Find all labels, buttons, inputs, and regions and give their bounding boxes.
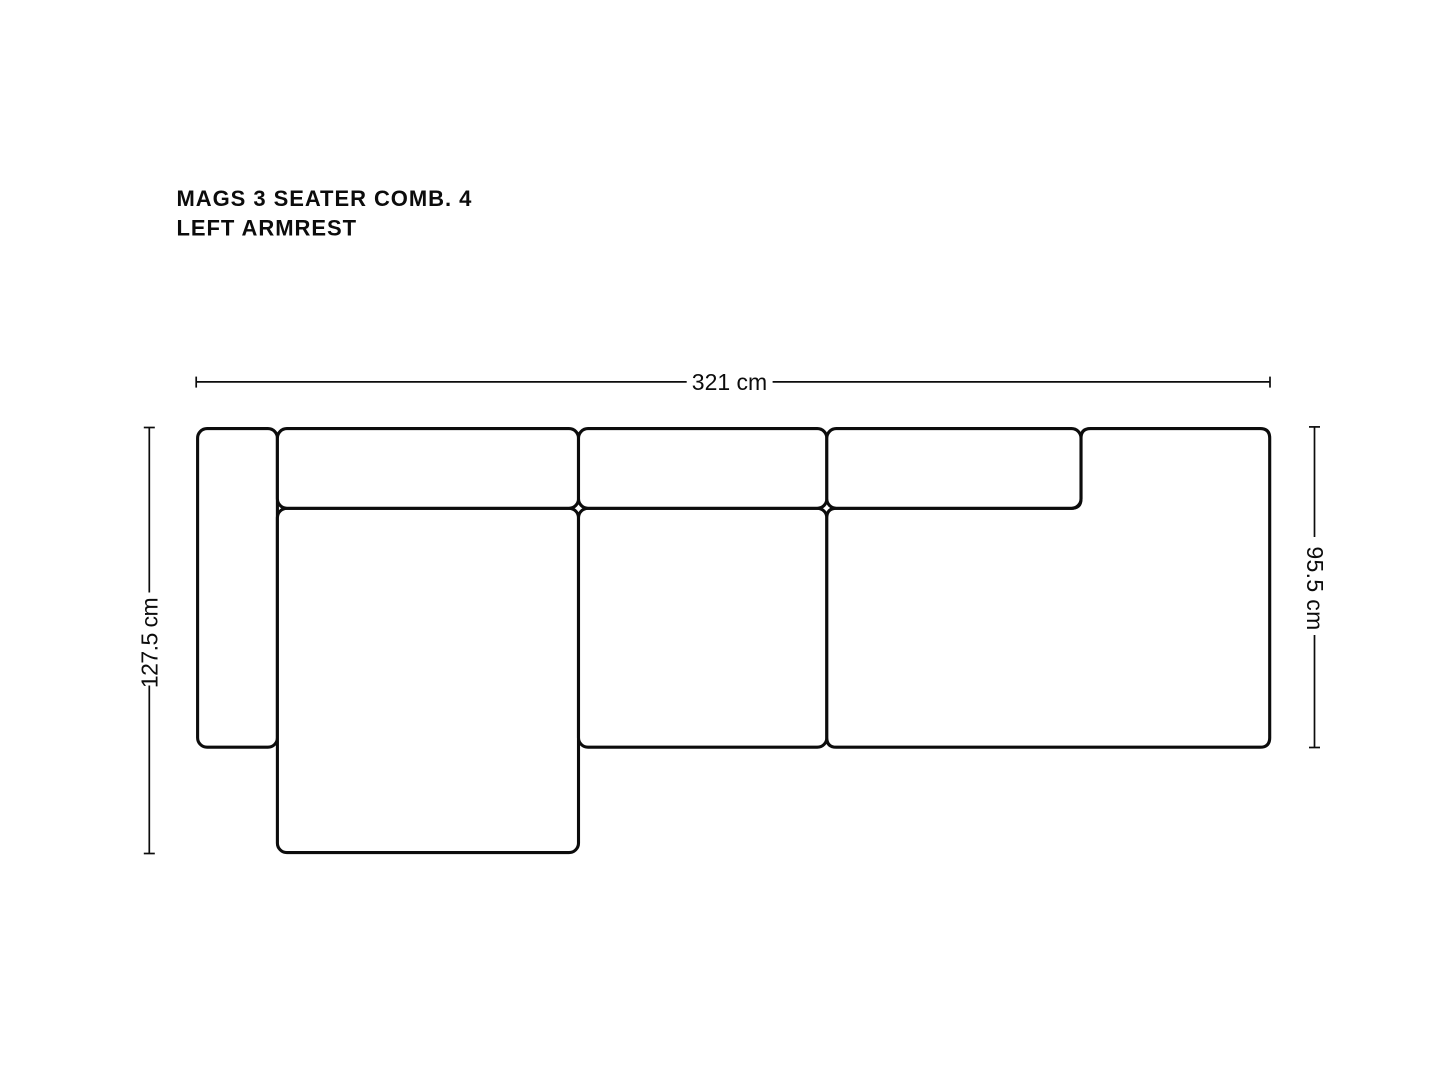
svg-text:MAGS 3 SEATER COMB. 4: MAGS 3 SEATER COMB. 4 xyxy=(177,186,473,211)
svg-text:127.5 cm: 127.5 cm xyxy=(136,598,162,688)
svg-text:95.5 cm: 95.5 cm xyxy=(1302,546,1328,630)
svg-text:321 cm: 321 cm xyxy=(692,369,767,395)
svg-text:LEFT ARMREST: LEFT ARMREST xyxy=(177,216,357,241)
